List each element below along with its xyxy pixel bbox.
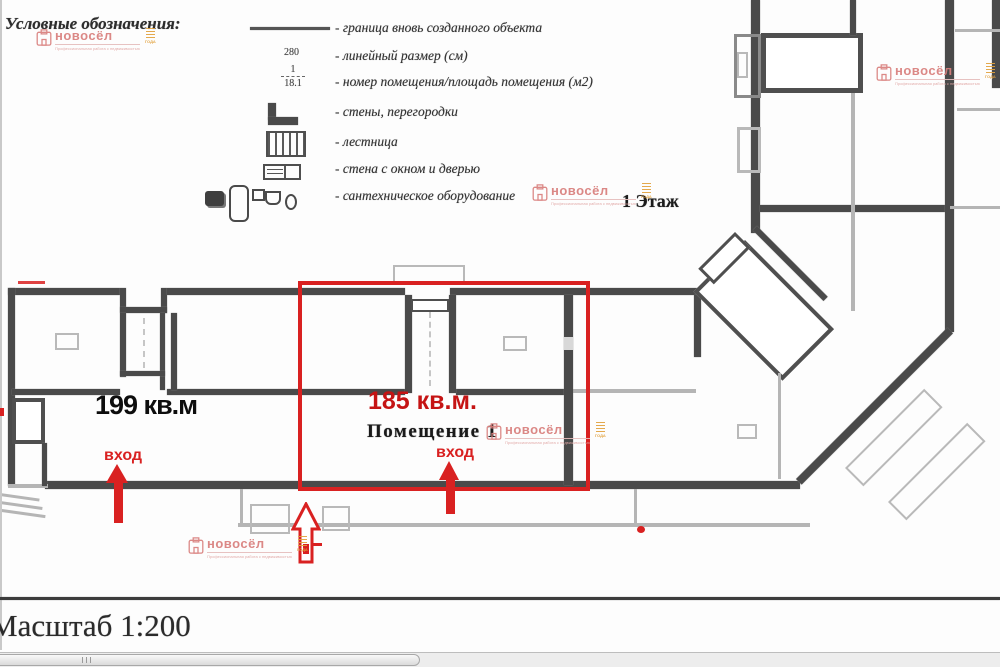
watermark-badge: ГОДА [297,536,308,552]
wall-segment [171,313,177,390]
entrance-arrow-left-shaft [114,481,123,523]
light-wall [240,489,243,525]
wall-segment [8,288,15,486]
legend-item-label: - сантехническое оборудование [335,188,515,204]
watermark-badge: ГОДА [145,28,156,44]
entrance-label-center: вход [436,444,474,462]
legend-item-label: - граница вновь созданного объекта [335,20,542,36]
left-room-area-label: 199 кв.м [95,390,197,421]
entrance-arrow-center-shaft [446,478,455,514]
house-logo-icon [486,422,502,441]
novosel-watermark: новосёлПрофессиональная работа с недвижи… [876,63,996,86]
watermark-badge: ГОДА [985,63,996,79]
highlighted-room-area-label: 185 кв.м. [368,387,477,416]
wall-segment [42,443,47,486]
wall-segment [120,313,126,377]
house-logo-icon [36,28,52,47]
novosel-watermark: новосёлПрофессиональная работа с недвижи… [188,536,308,559]
viewer-edge [0,0,2,650]
legend-symbol-boundary-line [250,27,330,30]
wall-segment [945,0,954,332]
wing-room-outline [761,33,863,93]
axis-line [143,318,145,368]
outdoor-steps [0,501,43,510]
light-wall [778,373,781,479]
legend-item-label: - линейный размер (см) [335,48,468,64]
light-wall [955,29,1000,32]
border-line [0,597,1000,600]
novosel-watermark: новосёлПрофессиональная работа с недвижи… [36,28,156,51]
legend-symbol-dimension-number: 280 [284,47,299,58]
watermark-tagline: Профессиональная работа с недвижимостью [551,199,636,206]
light-wall [851,93,855,311]
light-wall [957,108,1000,111]
watermark-brand: новосёл [207,536,292,551]
wall-segment [160,313,165,390]
light-wall [950,206,1000,209]
fixture-mark [737,424,757,439]
wall-segment [760,205,950,212]
legend-symbol-walls [268,103,300,127]
legend-symbol-window-door-wall [263,164,301,180]
legend-symbol-staircase [266,131,306,157]
small-room-outline [12,398,45,444]
wall-segment [8,288,120,295]
horizontal-scrollbar-thumb[interactable] [0,654,420,666]
watermark-brand: новосёл [505,422,590,437]
entrance-label-left: вход [104,447,142,465]
watermark-badge: ГОДА [595,422,606,438]
outdoor-steps [0,493,40,502]
watermark-tagline: Профессиональная работа с недвижимостью [207,552,292,559]
novosel-watermark: новосёлПрофессиональная работа с недвижи… [486,422,606,445]
legend-item-label: - номер помещения/площадь помещения (м2) [335,74,593,90]
balcony-notch [737,52,748,78]
scale-label: Масштаб 1:200 [0,608,191,644]
scrollbar-grip-icon [82,657,94,663]
watermark-badge: ГОДА [641,183,652,199]
watermark-tagline: Профессиональная работа с недвижимостью [55,44,140,51]
entrance-steps [322,506,350,531]
watermark-brand: новосёл [55,28,140,43]
house-logo-icon [876,63,892,82]
legend-symbol-room-fraction: 1 18.1 [281,64,305,89]
wall-segment [694,295,701,357]
red-mark [0,408,4,416]
entrance-steps [250,504,290,534]
watermark-tagline: Профессиональная работа с недвижимостью [895,79,980,86]
wall-segment [850,0,856,35]
legend-item-label: - стена с окном и дверью [335,161,480,177]
red-mark [18,281,45,284]
legend-item-label: - стены, перегородки [335,104,458,120]
wall-segment [120,371,165,376]
house-logo-icon [188,536,204,555]
floor-plan-document: Условные обозначения: 280 1 18.1 - грани… [0,0,1000,667]
legend-symbol-plumbing [205,185,305,221]
watermark-brand: новосёл [895,63,980,78]
fixture-mark [55,333,79,350]
house-logo-icon [532,183,548,202]
novosel-watermark: новосёлПрофессиональная работа с недвижи… [532,183,652,206]
watermark-tagline: Профессиональная работа с недвижимостью [505,438,590,445]
balcony-outline [737,127,761,173]
legend-item-label: - лестница [335,134,398,150]
outdoor-steps [2,509,46,518]
highlighted-room-name: Помещение 1 [367,421,498,443]
watermark-brand: новосёл [551,183,636,198]
light-wall [634,489,637,525]
red-dot [637,526,645,533]
